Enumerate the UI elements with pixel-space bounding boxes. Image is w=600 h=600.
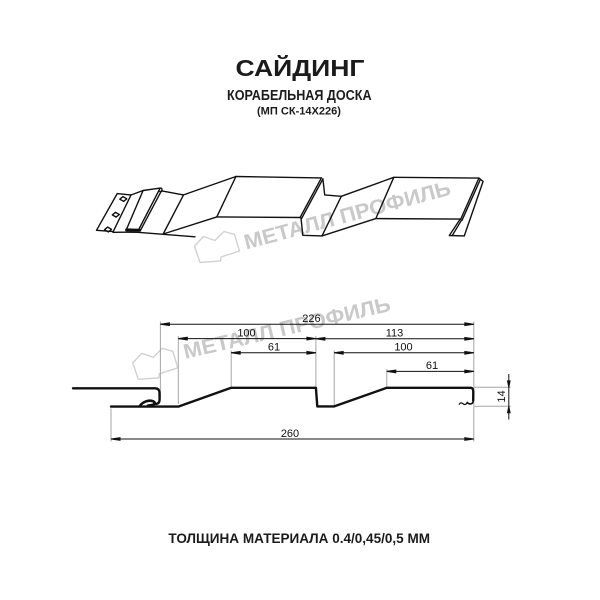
svg-text:ТОЛЩИНА МАТЕРИАЛА 0.4/0,45/0,5: ТОЛЩИНА МАТЕРИАЛА 0.4/0,45/0,5 ММ bbox=[168, 531, 430, 547]
svg-text:КОРАБЕЛЬНАЯ ДОСКА: КОРАБЕЛЬНАЯ ДОСКА bbox=[227, 88, 372, 104]
svg-text:226: 226 bbox=[302, 313, 320, 325]
svg-text:113: 113 bbox=[386, 328, 404, 340]
svg-text:САЙДИНГ: САЙДИНГ bbox=[236, 54, 365, 81]
svg-text:100: 100 bbox=[394, 342, 412, 354]
svg-text:(МП СК-14Х226): (МП СК-14Х226) bbox=[257, 105, 341, 117]
svg-text:100: 100 bbox=[237, 327, 255, 339]
svg-text:260: 260 bbox=[281, 428, 299, 440]
svg-text:61: 61 bbox=[268, 342, 280, 354]
svg-text:61: 61 bbox=[426, 360, 438, 372]
svg-text:14: 14 bbox=[496, 390, 508, 402]
